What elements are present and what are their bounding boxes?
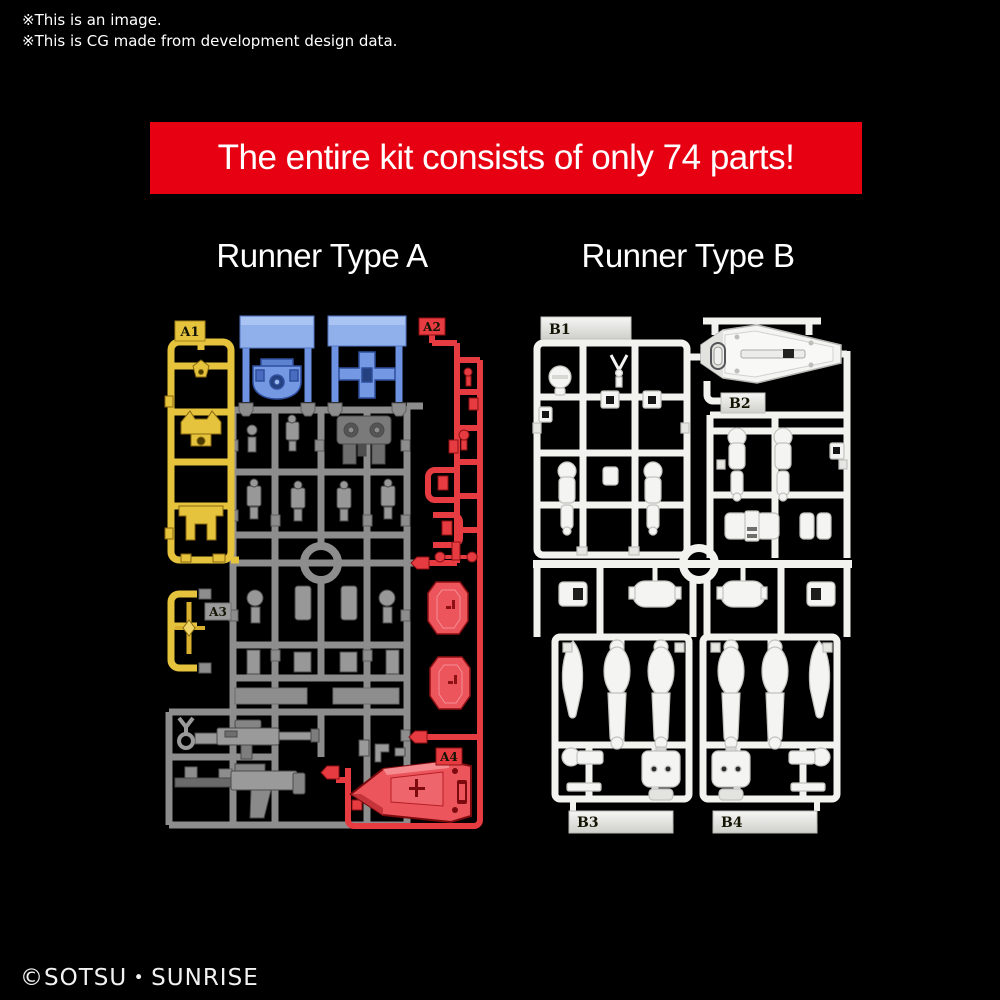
- runner-a-graphic: A3: [155, 310, 485, 840]
- disclaimer-line-2: ※This is CG made from development design…: [22, 31, 397, 52]
- b3-tag-label: B3: [577, 815, 599, 831]
- a4-gate-tag: A4: [436, 748, 462, 765]
- runner-b-frame: [533, 321, 852, 811]
- b2-tag-label: B2: [729, 396, 751, 412]
- runner-b-waist-and-forearm-parts: [717, 428, 847, 541]
- disclaimer-notes: ※This is an image. ※This is CG made from…: [22, 10, 397, 52]
- b2-gate-tag: B2: [721, 393, 765, 413]
- parts-count-banner: The entire kit consists of only 74 parts…: [150, 122, 862, 194]
- chest-part: [253, 359, 301, 399]
- runner-b-title: Runner Type B: [520, 237, 856, 275]
- disclaimer-line-1: ※This is an image.: [22, 10, 397, 31]
- b4-gate-tag: B4: [713, 811, 817, 833]
- core-part: [339, 352, 395, 398]
- a4-tag-label: A4: [439, 750, 458, 764]
- runner-a-title: Runner Type A: [155, 237, 489, 275]
- base-plate-part: [701, 325, 841, 383]
- b1-tag-label: B1: [549, 322, 571, 338]
- parts-count-banner-text: The entire kit consists of only 74 parts…: [218, 138, 795, 178]
- a3-gate-tag: A3: [205, 603, 231, 620]
- b1-gate-tag: B1: [541, 317, 631, 339]
- a1-tag-label: A1: [179, 325, 199, 340]
- a3-tag-label: A3: [208, 605, 227, 619]
- stand-joint-part: [179, 718, 193, 748]
- side-skirt-parts: [428, 582, 470, 709]
- a2-gate-tag: A2: [419, 318, 445, 335]
- runner-a-blue-section: [240, 316, 406, 402]
- product-image: ※This is an image. ※This is CG made from…: [0, 0, 1000, 1000]
- runner-b-graphic: B1 B2 B3 B4: [525, 305, 860, 845]
- beam-rifle-part: [195, 720, 319, 759]
- runner-b-leg-parts: [562, 640, 832, 800]
- b3-gate-tag: B3: [569, 811, 673, 833]
- a1-gate-tag: A1: [175, 321, 205, 341]
- b4-tag-label: B4: [721, 815, 743, 831]
- a2-tag-label: A2: [422, 320, 441, 334]
- copyright-notice: ©SOTSU・SUNRISE: [20, 958, 259, 992]
